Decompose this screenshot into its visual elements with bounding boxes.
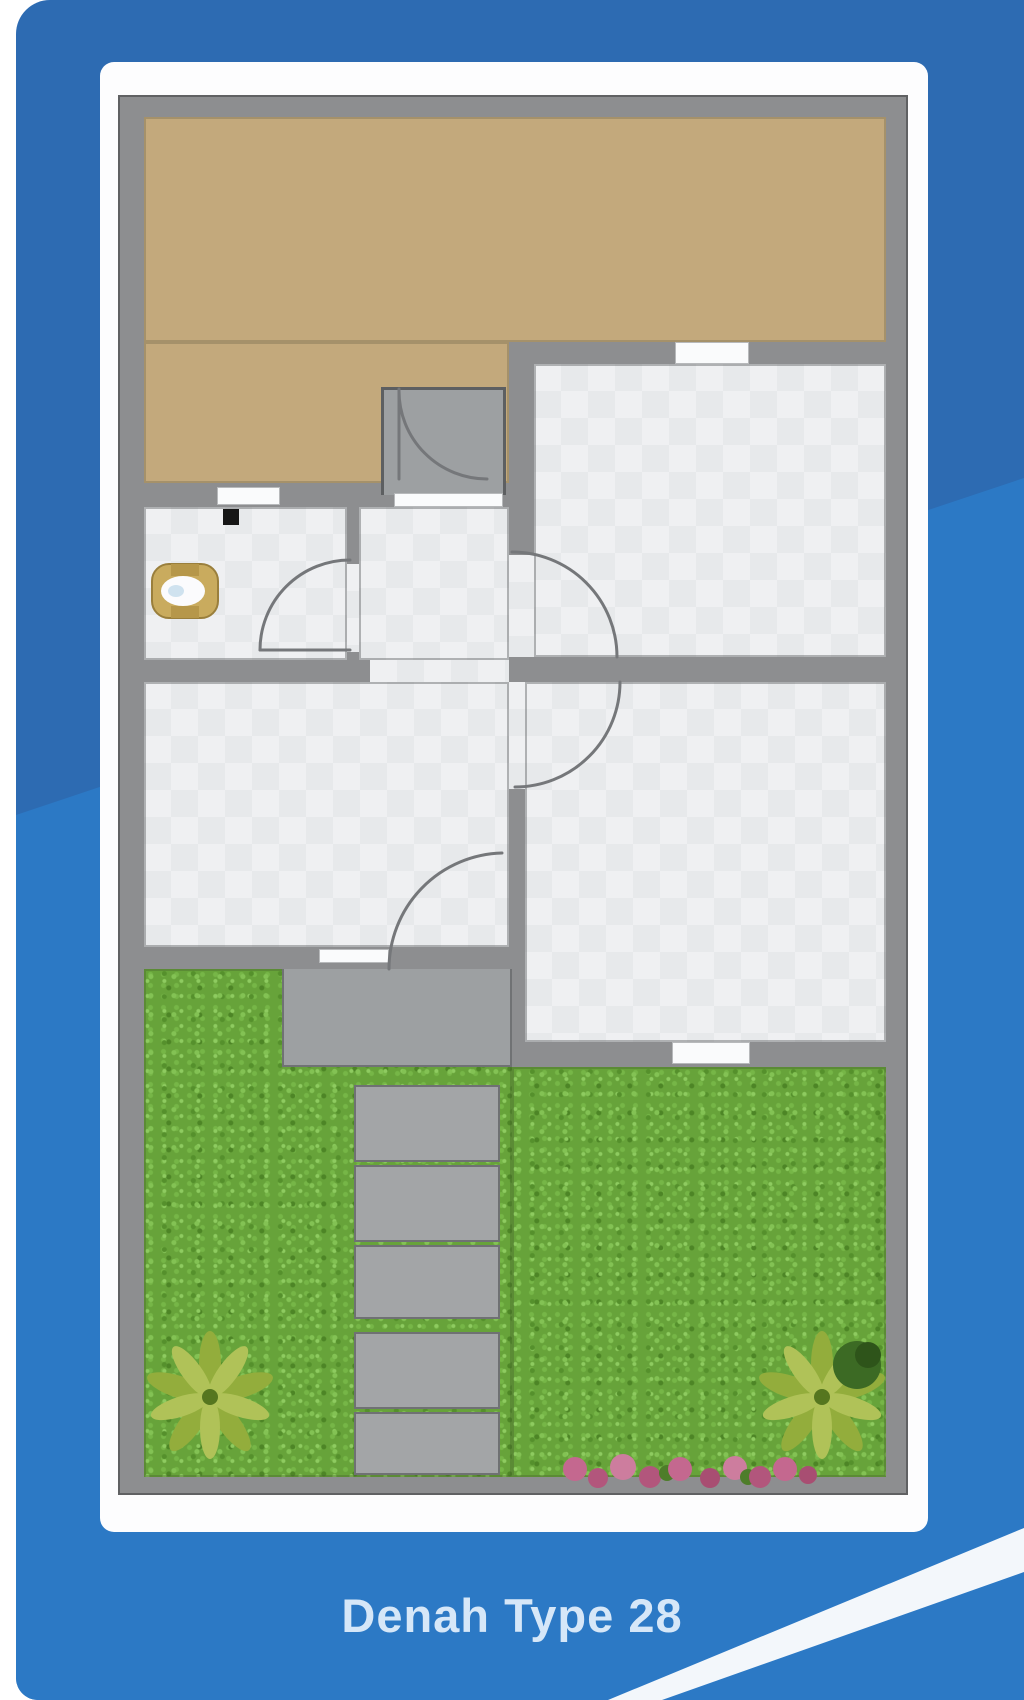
- backdoor-arc: [389, 853, 502, 969]
- column-marker: [223, 509, 239, 525]
- flower-bed-icon: [563, 1454, 817, 1488]
- front-door-arc: [399, 391, 487, 479]
- toilet-icon: [152, 564, 218, 618]
- bedroom1-door-arc: [512, 552, 617, 657]
- bedroom2-door-arc: [515, 682, 620, 787]
- floorplan: [118, 95, 908, 1495]
- plan-vector-overlay: [120, 97, 910, 1497]
- door-arcs: [260, 389, 620, 969]
- floorplan-card: [100, 62, 928, 1532]
- flyer-page: Denah Type 28: [0, 0, 1024, 1700]
- bathroom-door-arc: [260, 560, 350, 650]
- bush-icon: [833, 1341, 881, 1389]
- plan-caption: Denah Type 28: [0, 1588, 1024, 1643]
- palm-tree-icon: [144, 1331, 276, 1459]
